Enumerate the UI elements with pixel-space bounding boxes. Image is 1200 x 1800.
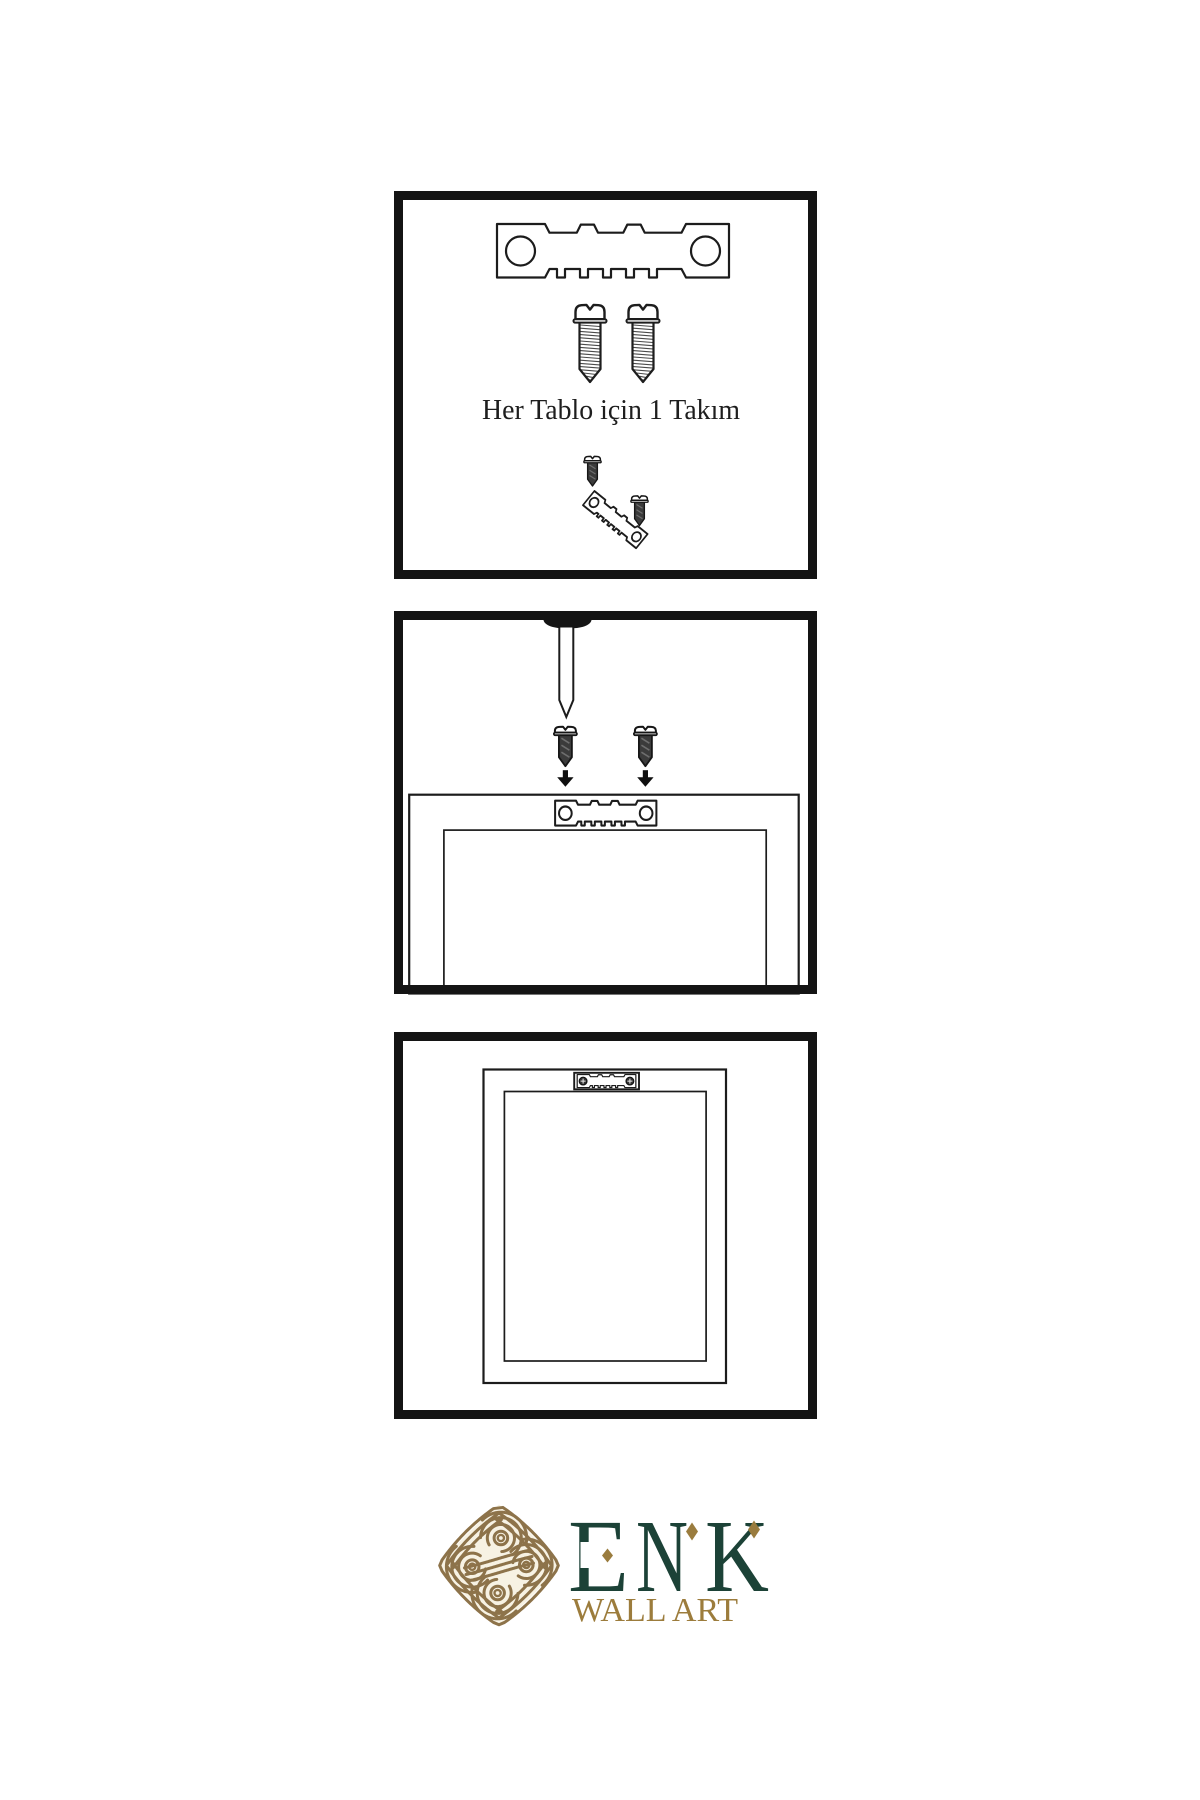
- svg-text:Her Tablo için 1 Takım: Her Tablo için 1 Takım: [482, 394, 740, 426]
- svg-text:WALL ART: WALL ART: [572, 1592, 738, 1629]
